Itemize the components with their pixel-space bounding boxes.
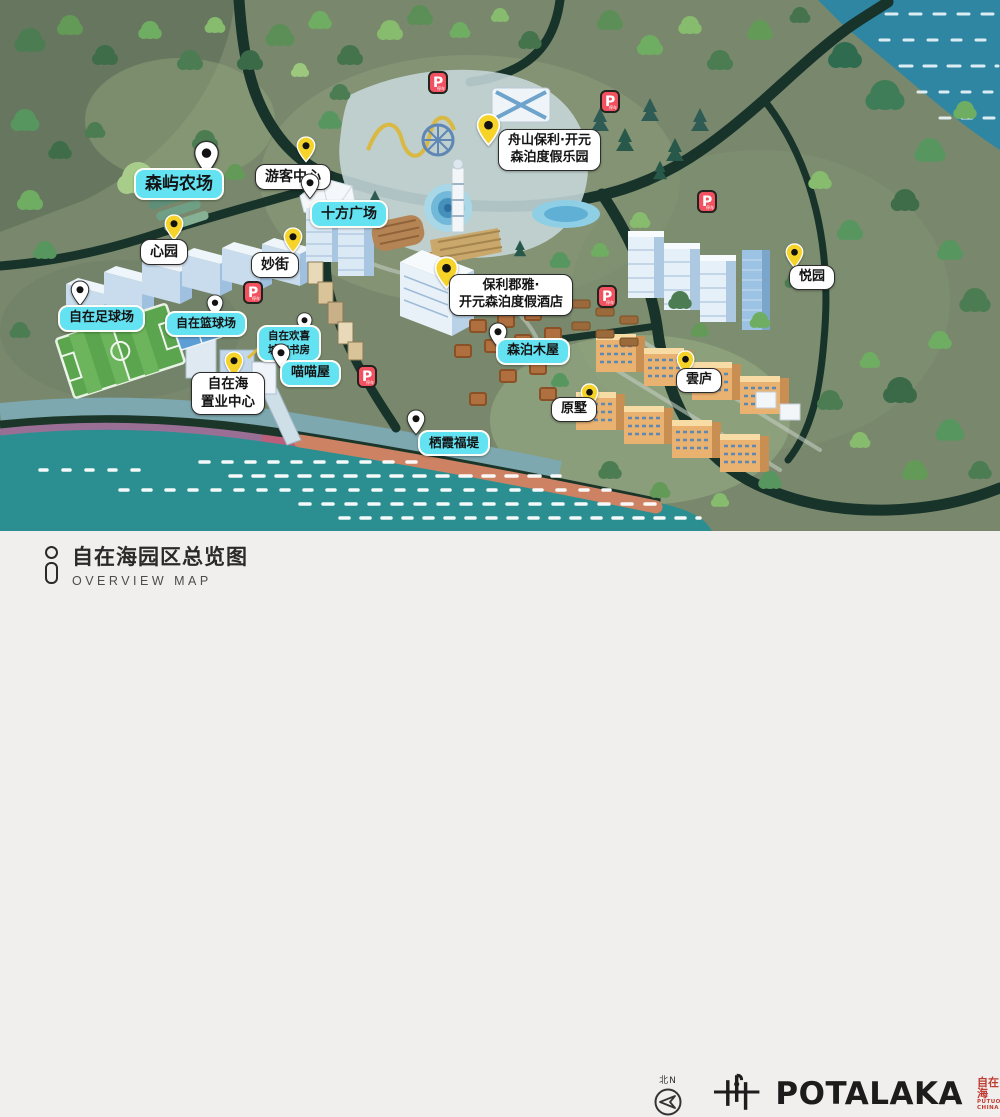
poi-cat-house[interactable]: 喵喵屋 (280, 360, 341, 387)
poi-sales-center[interactable]: 自在海 置业中心 (191, 372, 265, 415)
poi-label: 雲庐 (676, 368, 722, 393)
compass: 北N (648, 1073, 688, 1117)
poi-label: 妙街 (251, 252, 299, 278)
brand-block: POTALAKA 自在海 PUTUO CHINA (712, 1072, 1000, 1116)
map-pin-yellow-icon (164, 214, 184, 241)
poi-senyu-farm[interactable]: 森屿农场 (134, 168, 224, 200)
poi-label: 保利郡雅· 开元森泊度假酒店 (449, 274, 573, 316)
map-canvas: 森屿农场游客中心十方广场舟山保利·开元 森泊度假乐园心园妙街保利郡雅· 开元森泊… (0, 0, 1000, 531)
map-title: 自在海园区总览图 (72, 541, 248, 571)
map-pin-yellow-icon (296, 136, 316, 163)
parking-icon: P停车 (428, 71, 448, 94)
poi-label: 心园 (140, 239, 188, 265)
map-pin-yellow-icon (283, 227, 303, 254)
poi-label: 森屿农场 (134, 168, 224, 200)
parking-icon: P停车 (697, 190, 717, 213)
parking-icon: P停车 (600, 90, 620, 113)
parking-icon: P停车 (357, 365, 377, 388)
parking-icon: P停车 (243, 281, 263, 304)
footer-bar: 自在海园区总览图 OVERVIEW MAP 北N POTALAKA 自在 (0, 531, 1000, 599)
poi-label: 自在海 置业中心 (191, 372, 265, 415)
poi-shifang-square[interactable]: 十方广场 (310, 200, 388, 228)
compass-north-label: 北N (648, 1073, 688, 1086)
poi-yue-garden[interactable]: 悦园 (789, 265, 835, 290)
poi-label: 栖霞福堤 (418, 430, 490, 456)
potalaka-logo-mark-icon (712, 1072, 761, 1116)
poi-label: 悦园 (789, 265, 835, 290)
seal-text: 自在海 (977, 1077, 1000, 1100)
poi-label: 十方广场 (310, 200, 388, 228)
map-pin-white-icon (70, 280, 90, 307)
poi-label: 森泊木屋 (496, 338, 570, 365)
poi-miao-street[interactable]: 妙街 (251, 252, 299, 278)
seal-subtext: PUTUO CHINA (977, 1100, 1000, 1112)
poi-label: 自在篮球场 (165, 311, 247, 337)
map-pin-white-icon (300, 173, 320, 200)
poi-zhoushan-resort-park[interactable]: 舟山保利·开元 森泊度假乐园 (498, 129, 601, 171)
map-subtitle: OVERVIEW MAP (72, 574, 248, 588)
poi-label: 原墅 (551, 397, 597, 422)
poi-label: 舟山保利·开元 森泊度假乐园 (498, 129, 601, 171)
brand-seal: 自在海 PUTUO CHINA (977, 1077, 1000, 1112)
poi-xin-garden[interactable]: 心园 (140, 239, 188, 265)
poi-resort-hotel[interactable]: 保利郡雅· 开元森泊度假酒店 (449, 274, 573, 316)
brand-wordmark: POTALAKA (775, 1076, 963, 1112)
poi-senpo-cabins[interactable]: 森泊木屋 (496, 338, 570, 365)
poi-qixia-dike[interactable]: 栖霞福堤 (418, 430, 490, 456)
poi-yun-lodge[interactable]: 雲庐 (676, 368, 722, 393)
overview-map-page: 森屿农场游客中心十方广场舟山保利·开元 森泊度假乐园心园妙街保利郡雅· 开元森泊… (0, 0, 1000, 599)
poi-label: 喵喵屋 (280, 360, 341, 387)
parking-icon: P停车 (597, 285, 617, 308)
legend-marker-icon (44, 546, 58, 584)
poi-basketball-court[interactable]: 自在篮球场 (165, 311, 247, 337)
poi-layer: 森屿农场游客中心十方广场舟山保利·开元 森泊度假乐园心园妙街保利郡雅· 开元森泊… (0, 0, 1000, 531)
poi-yuan-villa[interactable]: 原墅 (551, 397, 597, 422)
poi-label: 自在足球场 (58, 305, 145, 332)
poi-football-field[interactable]: 自在足球场 (58, 305, 145, 332)
compass-arrow-icon (653, 1087, 683, 1117)
